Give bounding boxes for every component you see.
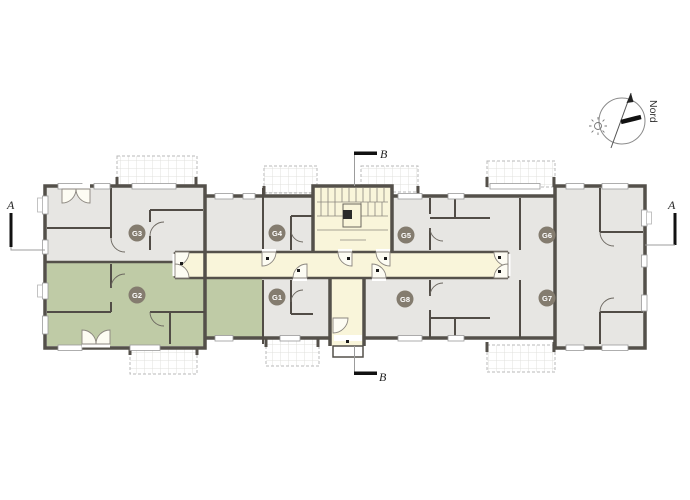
balcony-top-1 <box>117 156 197 185</box>
badge-g2[interactable]: G2 <box>129 287 146 304</box>
svg-text:G6[interactable]: G6 <box>542 231 552 240</box>
north-compass-icon: Nord <box>589 93 659 148</box>
svg-text:G5[interactable]: G5 <box>401 231 411 240</box>
floor-plan: G3 G4 G5 G6 G2 G1 G8 G7 <box>0 0 690 500</box>
balcony-top-2 <box>264 166 317 193</box>
svg-text:G1[interactable]: G1 <box>272 293 282 302</box>
north-label: Nord <box>647 100 659 123</box>
svg-text:B: B <box>380 147 388 161</box>
balcony-bottom-1 <box>130 347 197 374</box>
svg-text:A: A <box>667 198 676 212</box>
connector-floor <box>520 196 555 338</box>
svg-text:G7[interactable]: G7 <box>542 294 552 303</box>
svg-text:G2[interactable]: G2 <box>132 291 142 300</box>
floor-plan-page: G3 G4 G5 G6 G2 G1 G8 G7 <box>0 0 690 500</box>
balcony-bottom-3 <box>487 345 555 372</box>
badge-g7[interactable]: G7 <box>539 290 556 307</box>
badge-g3[interactable]: G3 <box>129 225 146 242</box>
svg-text:G3[interactable]: G3 <box>132 229 142 238</box>
svg-text:A: A <box>6 198 15 212</box>
balcony-bottom-2 <box>266 339 319 366</box>
badge-g4[interactable]: G4 <box>269 225 286 242</box>
badge-g8[interactable]: G8 <box>397 291 414 308</box>
badge-g6[interactable]: G6 <box>539 227 556 244</box>
badge-g5[interactable]: G5 <box>398 227 415 244</box>
svg-text:G4[interactable]: G4 <box>272 229 283 238</box>
badge-g1[interactable]: G1 <box>269 289 286 306</box>
sun-icon <box>589 117 607 135</box>
svg-text:B: B <box>379 370 387 384</box>
svg-text:G8[interactable]: G8 <box>400 295 410 304</box>
entrance-vestibule <box>333 346 363 357</box>
